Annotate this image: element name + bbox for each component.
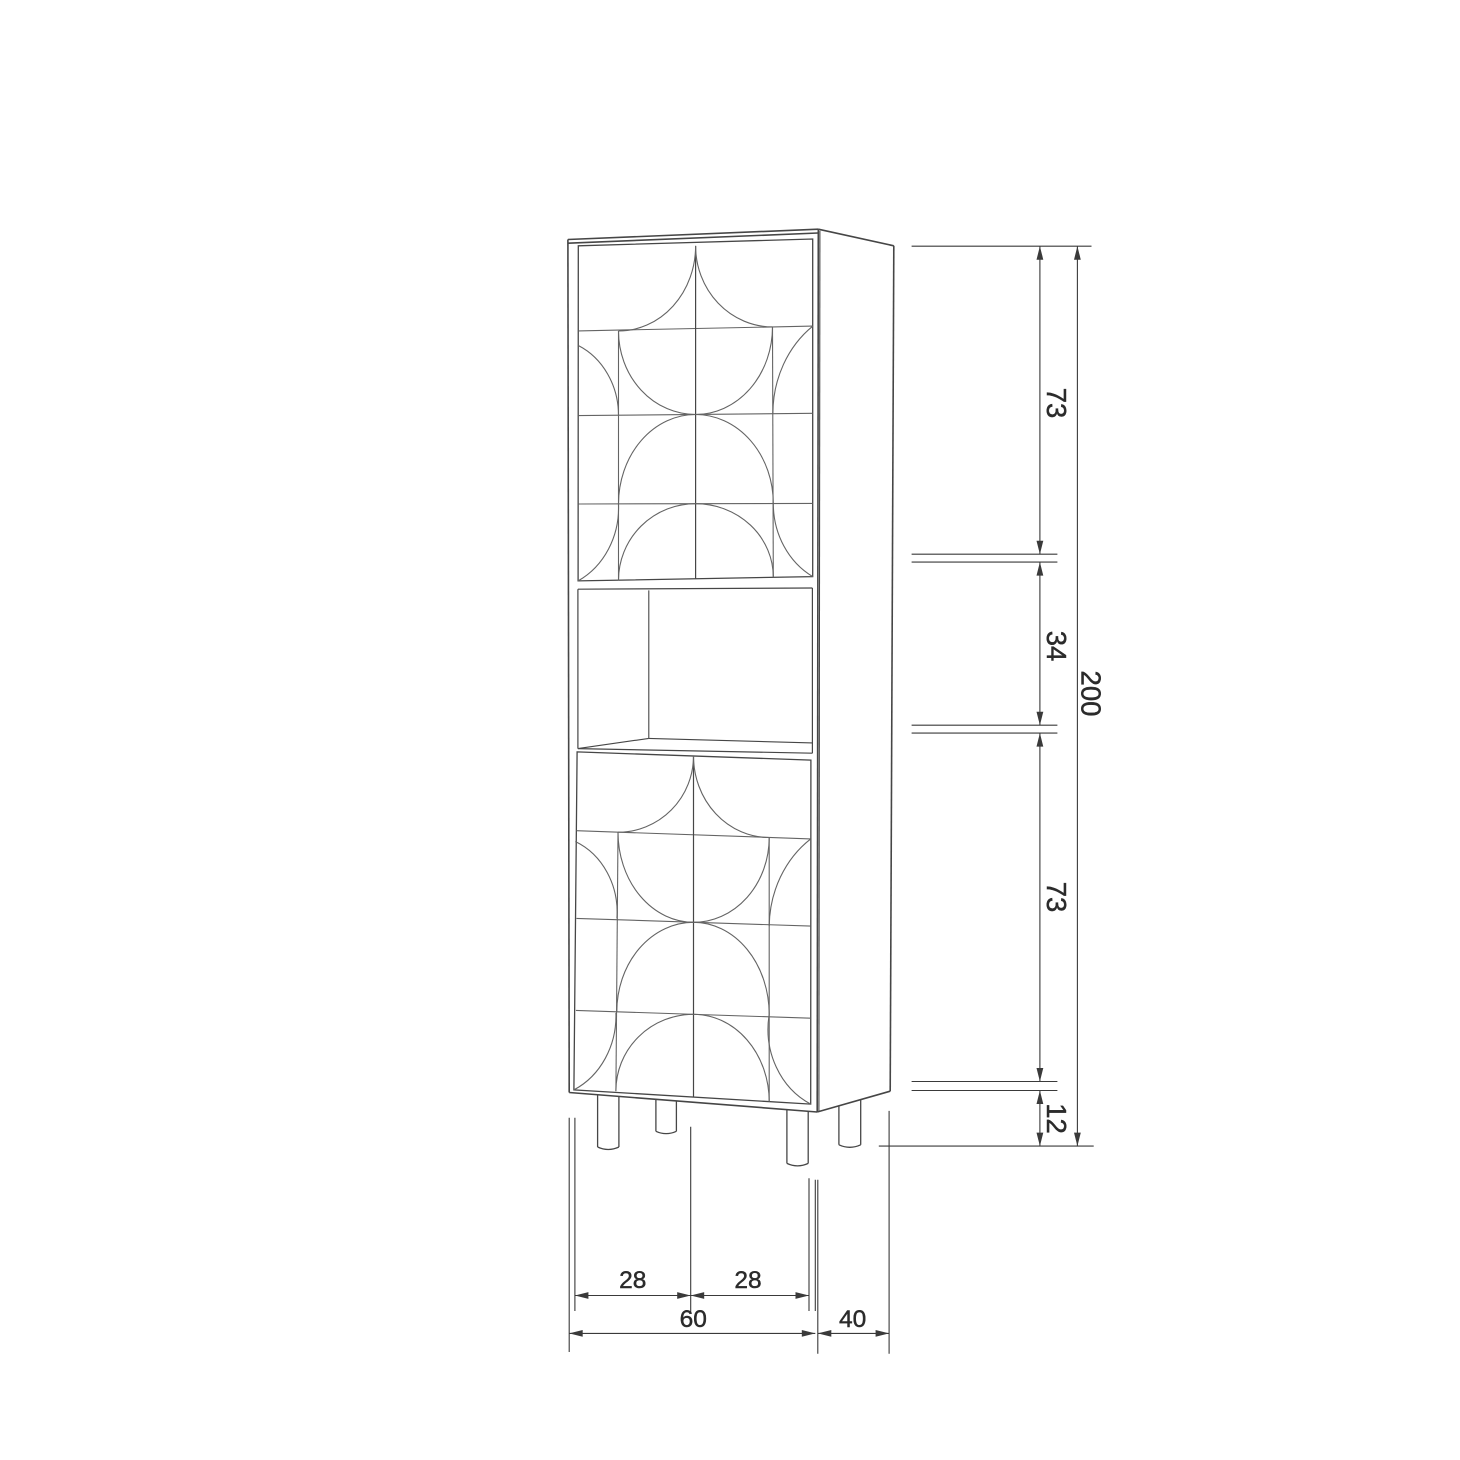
svg-text:12: 12 bbox=[1041, 1103, 1072, 1134]
svg-text:73: 73 bbox=[1041, 882, 1072, 913]
svg-text:28: 28 bbox=[619, 1267, 646, 1294]
svg-text:34: 34 bbox=[1041, 631, 1072, 662]
svg-text:60: 60 bbox=[680, 1306, 707, 1333]
svg-text:73: 73 bbox=[1041, 388, 1072, 419]
svg-text:40: 40 bbox=[839, 1306, 866, 1333]
svg-text:200: 200 bbox=[1076, 671, 1107, 717]
svg-text:28: 28 bbox=[734, 1267, 761, 1294]
